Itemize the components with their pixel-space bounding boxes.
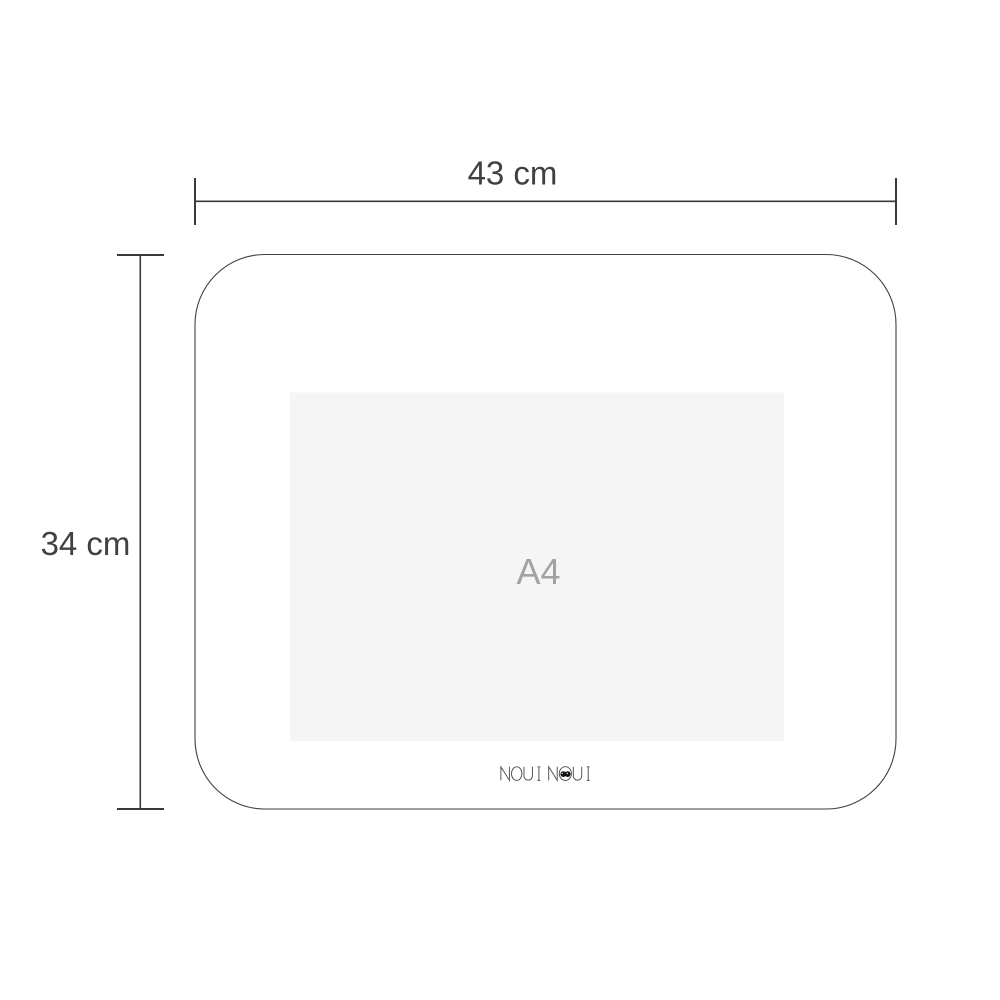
svg-text:43 cm: 43 cm xyxy=(468,155,558,192)
svg-text:A4: A4 xyxy=(516,551,560,592)
svg-text:34 cm: 34 cm xyxy=(41,525,131,562)
